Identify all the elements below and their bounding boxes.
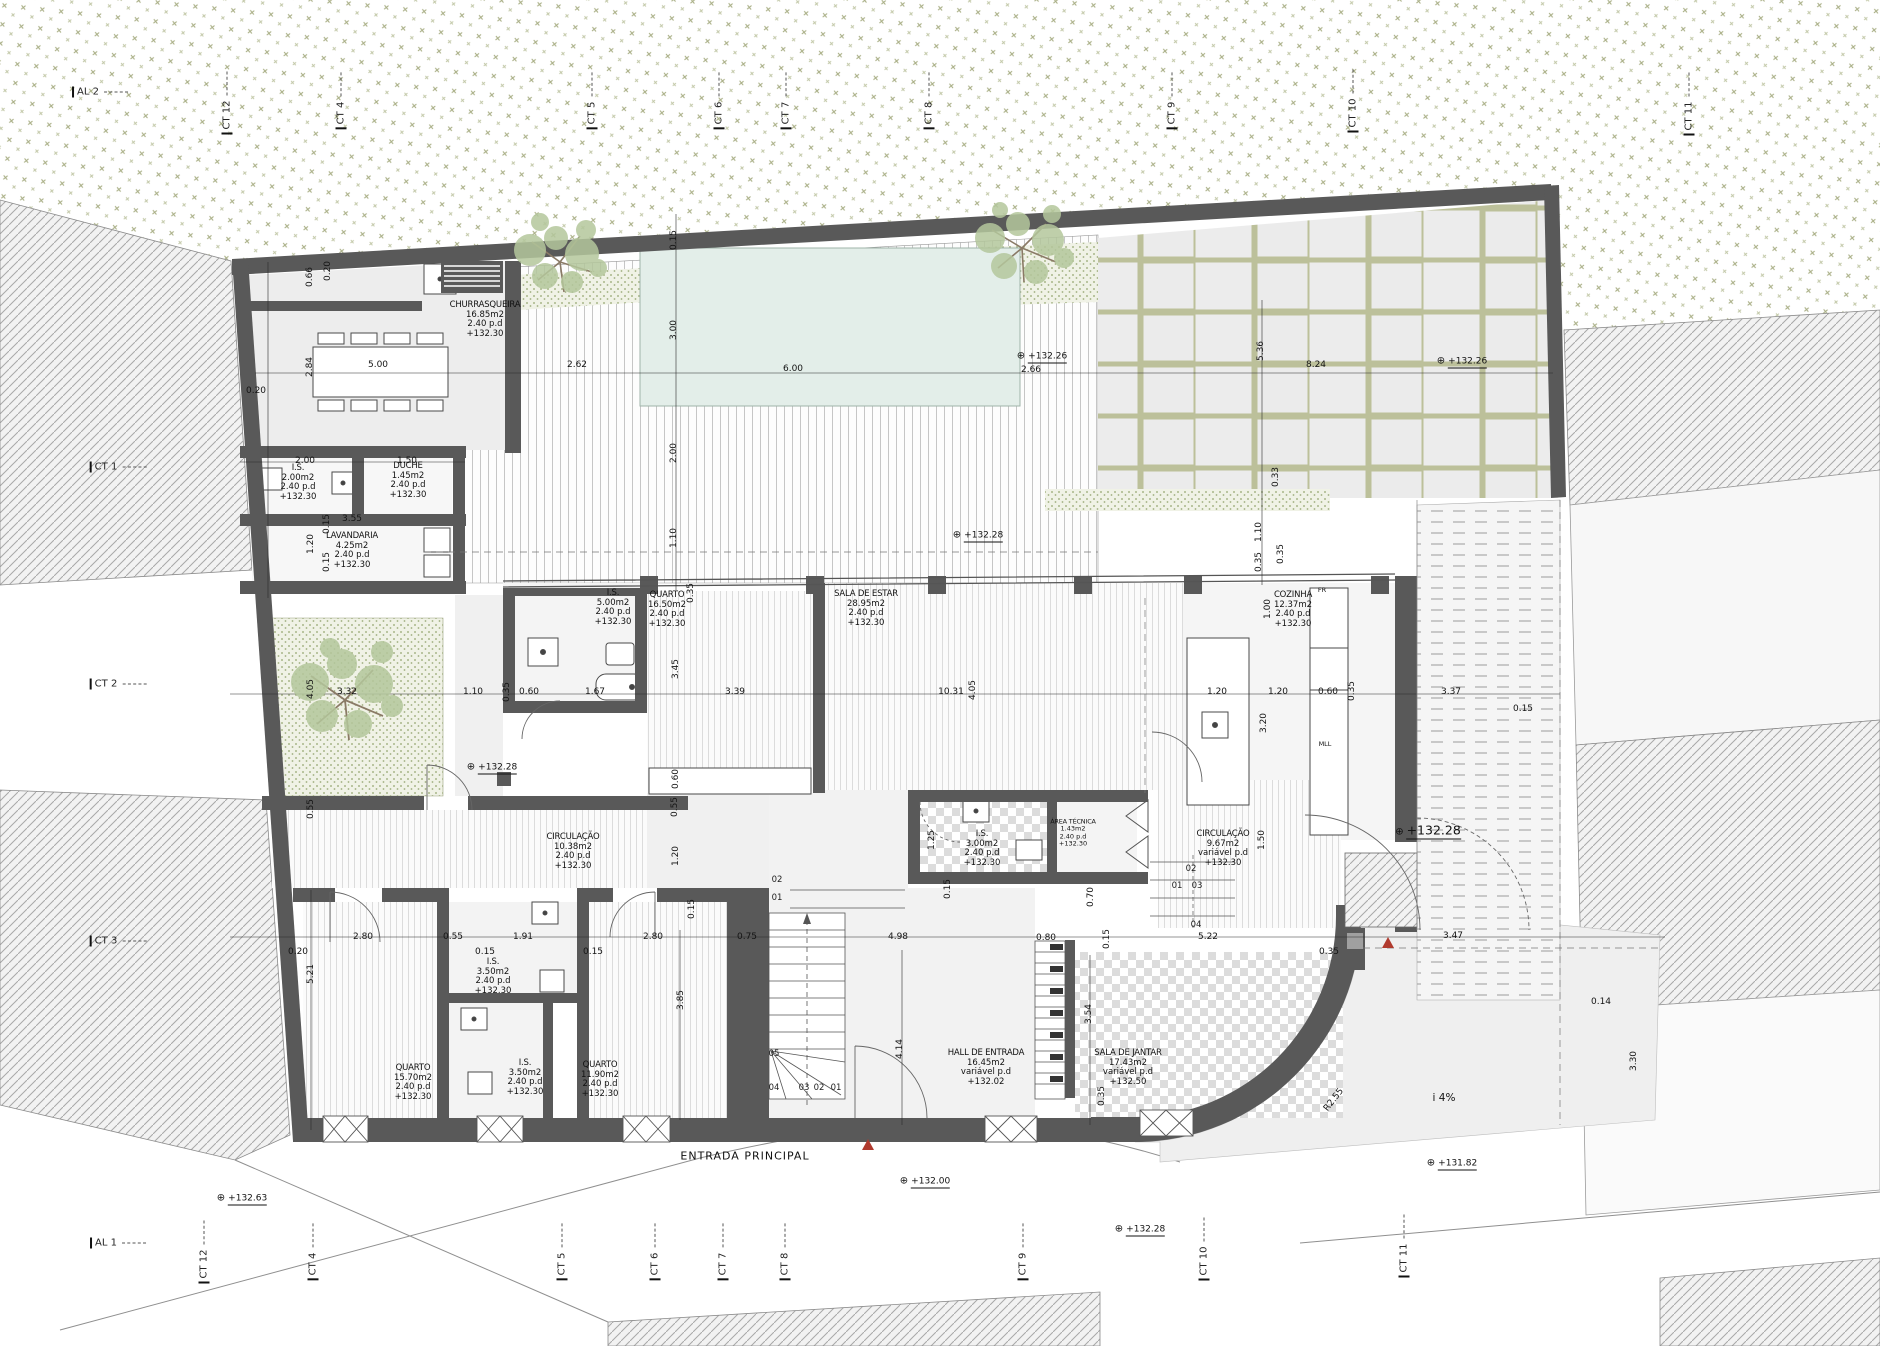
washing-machine — [424, 528, 450, 552]
east-deck-steps — [1417, 500, 1560, 1000]
piano — [1035, 941, 1065, 1099]
area-tecnica-floor — [1057, 802, 1137, 872]
main-staircase — [769, 913, 845, 1105]
stair-lobby-floor — [769, 793, 908, 888]
lavandaria-floor — [252, 526, 452, 581]
road-band-bottom — [608, 1292, 1100, 1346]
neighbor-parcel-right — [1570, 470, 1880, 745]
kitchen-cabinets — [1310, 588, 1348, 835]
is5-wc — [606, 643, 634, 665]
quarto1-floor — [303, 902, 437, 1118]
is3-wc — [1016, 840, 1042, 860]
window — [623, 1116, 670, 1142]
neighbor-building-left-1 — [0, 200, 252, 585]
dining-table — [313, 347, 448, 397]
patio-garden — [258, 618, 443, 796]
floor-plan-page: CHURRASQUEIRA16.85m22.40 p.d+132.30I.S.2… — [0, 0, 1880, 1346]
swimming-pool — [640, 248, 1020, 406]
dryer — [424, 555, 450, 577]
paver-terrace — [1098, 200, 1558, 498]
quarto3-floor — [647, 591, 813, 793]
road-band-bottom-right — [1660, 1258, 1880, 1346]
planting-strip — [1045, 489, 1330, 511]
window — [477, 1116, 523, 1142]
contour-line-3 — [235, 1160, 608, 1322]
neighbor-building-left-2 — [0, 790, 290, 1160]
patio-walk — [455, 595, 503, 796]
sala-estar-floor — [825, 583, 1183, 790]
is-bot-wc — [468, 1072, 492, 1094]
closet — [649, 768, 811, 794]
wall-east — [1395, 576, 1417, 842]
wall-south — [293, 1118, 1093, 1142]
corridor-floor — [272, 810, 687, 888]
window — [323, 1116, 368, 1142]
window — [1140, 1110, 1193, 1136]
window — [985, 1116, 1037, 1142]
wall-stair — [727, 888, 769, 1120]
exterior-step-block — [1345, 853, 1417, 927]
floor-plan-drawing — [0, 0, 1880, 1346]
is-top-wc — [540, 970, 564, 992]
